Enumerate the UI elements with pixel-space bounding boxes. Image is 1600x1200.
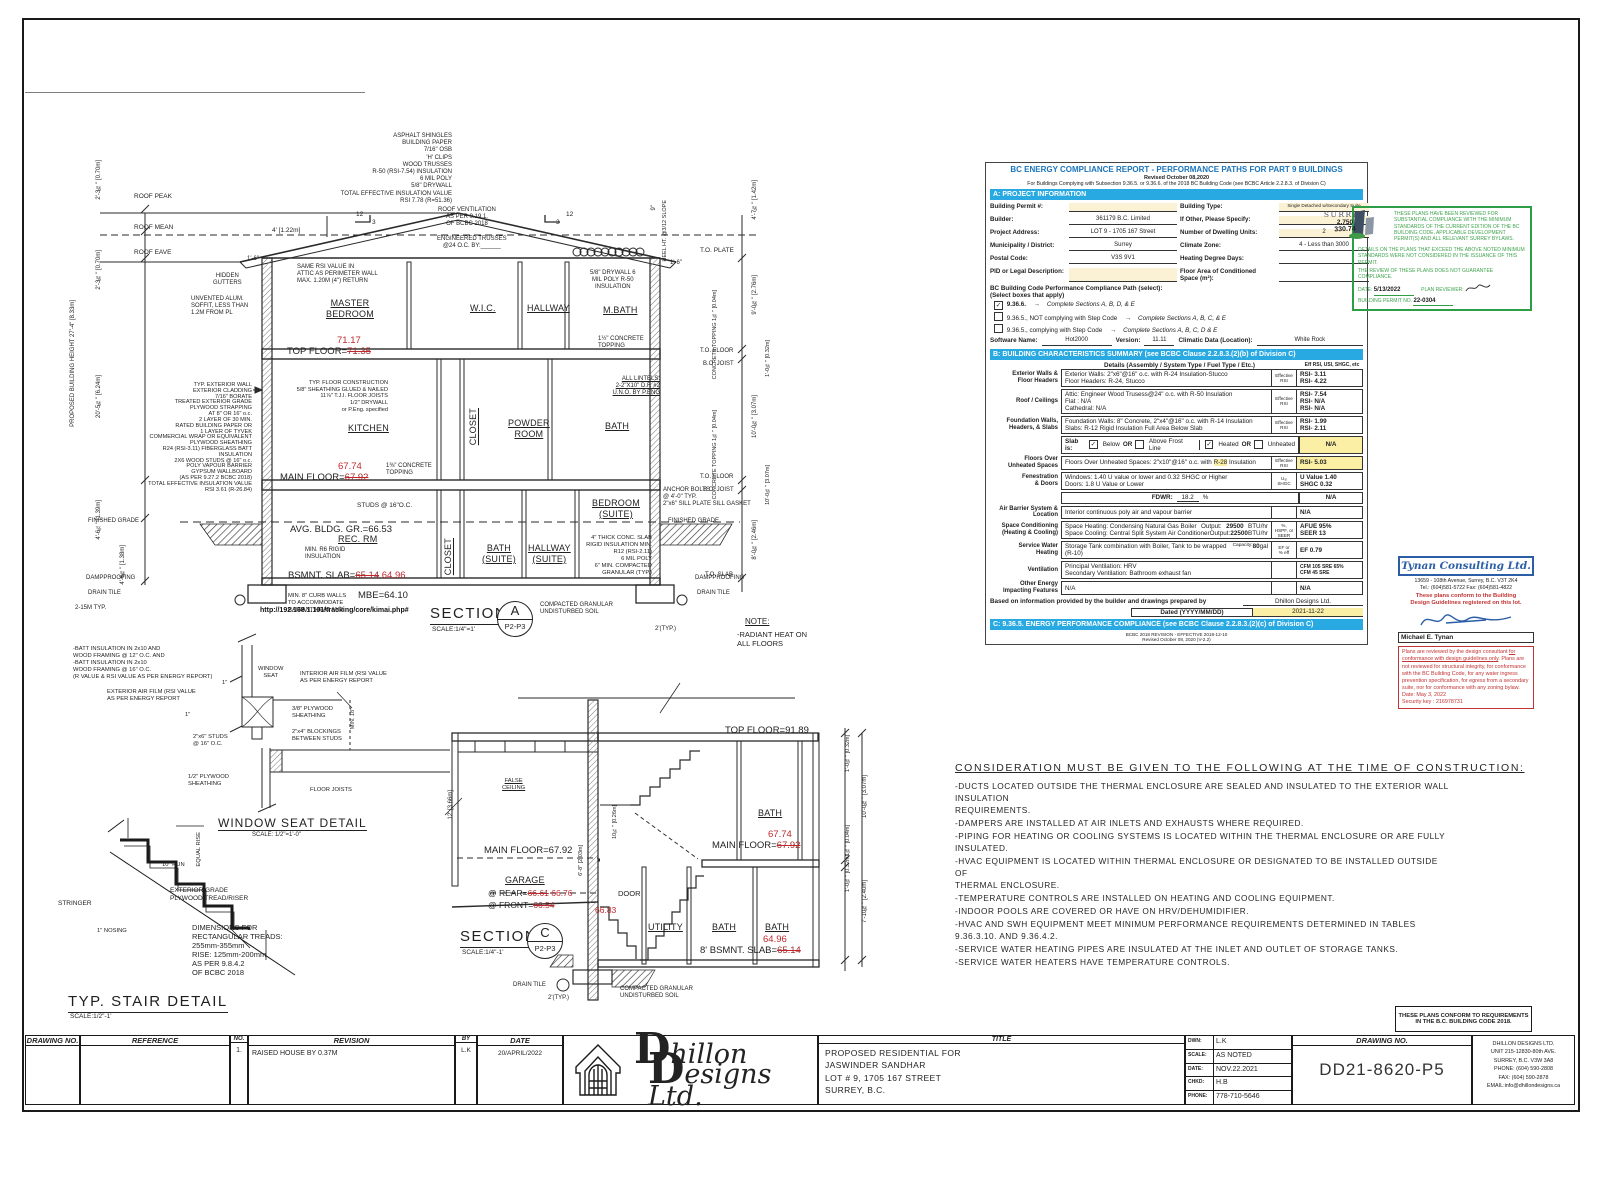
eff-value: RSI- 7.54	[1300, 391, 1362, 398]
tynan-conform-note: These plans conform to the Building Desi…	[1398, 593, 1534, 607]
tynan-stamp: Tynan Consulting Ltd. 13659 - 108th Aven…	[1398, 556, 1534, 709]
checkbox-checked-icon[interactable]: ✓	[994, 301, 1003, 310]
path-code: 9.36.5., NOT complying with Step Code	[1007, 315, 1118, 322]
c-bsmt-slab-new: 64.96	[763, 934, 787, 945]
dim-right-5: 10'-0⅝" [3.07m]	[765, 465, 772, 505]
eff-value: RSI- 5.03	[1300, 459, 1362, 466]
software-field[interactable]: Hot2000	[1042, 337, 1112, 346]
roof-peak-label: ROOF PEAK	[134, 193, 172, 201]
dim-left-1: 2'-3⅝" [0.70m]	[96, 160, 103, 200]
dim-overhang: 4' [1.22m]	[272, 227, 300, 235]
path-complete: Complete Sections A, B, D, & E	[1047, 301, 1135, 308]
tb-drawingno-col: DRAWING NO.	[25, 1035, 80, 1105]
consideration-item: -HVAC EQUIPMENT IS LOCATED WITHIN THERMA…	[955, 855, 1453, 891]
tb-h-drawing-no2: DRAWING NO.	[1293, 1036, 1471, 1046]
reviewer-signature	[1465, 283, 1491, 293]
room-bath-suite: BATH (SUITE)	[482, 543, 516, 565]
roof-vent-note: ROOF VENTILATION AS PER 9.19.1. OF BCBC …	[438, 207, 496, 229]
eff-value: U Value 1.40	[1300, 474, 1362, 481]
eff-value: CFM 45 SRE	[1300, 570, 1362, 576]
er-title: BC ENERGY COMPLIANCE REPORT - PERFORMANC…	[990, 166, 1363, 175]
climatic-field[interactable]: White Rock	[1257, 337, 1363, 346]
scale-value: AS NOTED	[1213, 1050, 1291, 1064]
consideration-item: -DUCTS LOCATED OUTSIDE THE THERMAL ENCLO…	[955, 780, 1453, 816]
stamp-paragraph-1: THESE PLANS HAVE BEEN REVIEWED FOR SUBST…	[1394, 211, 1526, 245]
eff-value: RSI- 4.22	[1300, 378, 1362, 385]
checkbox-icon[interactable]	[994, 312, 1003, 321]
tb-h-revision: REVISION	[249, 1036, 454, 1046]
room-wic: W.I.C.	[470, 303, 496, 314]
row-space-conditioning: Space Conditioning (Heating & Cooling) S…	[990, 521, 1363, 539]
to-plate-label: T.O. PLATE	[700, 247, 734, 255]
detail-line: Windows: 1.40 U value or lower and 0.32 …	[1065, 474, 1268, 481]
dim-left-3: 20'-5⅝" [6.24m]	[96, 375, 103, 418]
tb-date-col: DATE 20/APRIL/2022	[477, 1035, 563, 1105]
stringer-label: STRINGER	[58, 900, 92, 908]
granular-note: COMPACTED GRANULAR UNDISTURBED SOIL	[540, 602, 613, 616]
path-subheading: (Select boxes that apply)	[990, 292, 1363, 299]
heel-height-note: HEEL HT. @3/12 SLOPE	[662, 200, 669, 262]
project-address-field[interactable]: LOT 9 - 1705 167 Street	[1069, 229, 1177, 238]
section-a-ref: P2-P3	[498, 620, 532, 634]
checkbox-unheated-icon[interactable]	[1254, 440, 1263, 449]
path-option-3[interactable]: 9.36.5., complying with Step Code → Comp…	[994, 324, 1363, 334]
drain-tile-left: DRAIN TILE	[88, 590, 121, 597]
checkbox-heated-icon[interactable]: ✓	[1205, 440, 1214, 449]
field-label: Postal Code:	[990, 255, 1066, 264]
dwn-value: L.K	[1213, 1036, 1291, 1050]
arrow-icon: →	[1110, 327, 1115, 334]
phone-value: 778-710-5646	[1213, 1091, 1291, 1104]
consideration-item: -SERVICE WATER HEATERS HAVE TEMPERATURE …	[955, 956, 1453, 968]
floor-joists-label: FLOOR JOISTS	[310, 787, 352, 794]
software-row: Software Name: Hot2000 Version: 11.11 Cl…	[990, 337, 1363, 346]
int-air-film-note: INTERIOR AIR FILM (RSI VALUE AS PER ENER…	[300, 671, 387, 685]
scale-label: SCALE:	[1186, 1050, 1213, 1064]
plywood-38-note: 3/8" PLYWOOD SHEATHING	[292, 706, 333, 720]
consideration-item: -PIPING FOR HEATING OR COOLING SYSTEMS I…	[955, 830, 1453, 854]
detail-line: Principal Ventilation: HRV	[1065, 563, 1268, 570]
field-label: Building Permit #:	[990, 203, 1066, 212]
or-label: OR	[1123, 441, 1132, 448]
er-rev2: Revised October 08, 2020 (V-2.2)	[990, 637, 1363, 642]
dim-right-3: 1'-0⅝" [0.32m]	[765, 340, 772, 377]
main-floor-elevation: MAIN FLOOR=67.92	[280, 472, 368, 483]
dhillon-logo-text: Dhillon Designs Ltd.	[634, 1032, 817, 1109]
code-conform-text: THESE PLANS CONFORM TO REQUIREMENTS IN T…	[1396, 1013, 1531, 1025]
note-radiant: -RADIANT HEAT ON ALL FLOORS	[737, 630, 807, 648]
stamp-paragraph-3: THE REVIEW OF THESE PLANS DOES NOT GUARA…	[1358, 268, 1526, 281]
stamp-date-label: DATE:	[1358, 287, 1372, 293]
arrow-icon: →	[1034, 301, 1039, 308]
heel-9in: 9"	[651, 205, 658, 210]
eff-value: N/A	[1300, 509, 1362, 516]
field-label: Building Type:	[1180, 203, 1276, 212]
row-exterior-walls: Exterior Walls & Floor Headers Exterior …	[990, 369, 1363, 387]
tb-h-drawing-no: DRAWING NO.	[26, 1036, 79, 1046]
roof-eave-label: ROOF EAVE	[134, 249, 171, 257]
municipality-field[interactable]: Surrey	[1069, 242, 1177, 251]
drawing-sheet: { "a": { "roof_note": "ASPHALT SHINGLES\…	[0, 0, 1600, 1200]
row-fdwr: FDWR: 18.2 % N/A	[990, 492, 1363, 504]
date-label: DATE:	[1186, 1064, 1213, 1078]
tb-logo-panel: Dhillon Designs Ltd.	[563, 1035, 818, 1105]
revision-date: 20/APRIL/2022	[478, 1050, 562, 1057]
path-complete: Complete Sections A, B, C, D & E	[1123, 327, 1217, 334]
version-field[interactable]: 11.11	[1144, 337, 1174, 346]
concrete-topping-lower: 1⅜" CONCRETE TOPPING	[386, 463, 432, 477]
dated-row: Dated (YYYY/MM/DD) 2021-11-22	[990, 608, 1363, 617]
slab-value: N/A	[1299, 436, 1363, 454]
slope-left: 12	[356, 211, 363, 219]
er-section-a-bar: A: PROJECT INFORMATION	[990, 189, 1363, 200]
tynan-address: 13659 - 108th Avenue, Surrey, B.C. V3T 2…	[1398, 578, 1534, 591]
main-floor-new: 67.74	[338, 461, 362, 472]
section-c-ref: P2-P3	[528, 942, 562, 956]
consideration-item: -TEMPERATURE CONTROLS ARE INSTALLED ON H…	[955, 892, 1453, 904]
building-height-dim: PROPOSED BUILDING HEIGHT 27'-4" [8.33m]	[70, 300, 77, 427]
hidden-gutters-note: HIDDEN GUTTERS	[213, 273, 242, 287]
field-label: Climate Zone:	[1180, 242, 1276, 251]
dim-1-6-right: 1'-6"	[670, 260, 682, 267]
path-complete: Complete Sections A, B, C, & E	[1138, 315, 1226, 322]
garage-front-new: 66.83	[595, 905, 616, 915]
equal-rise-label: EQUAL RISE	[196, 832, 203, 867]
surrey-logo-cluster: SURREY 2,750 330.74	[1322, 210, 1368, 233]
detail-line: Doors: 1.8 U Value or Lower	[1065, 481, 1268, 488]
er-subtitle: For Buildings Complying with Subsection …	[990, 181, 1363, 187]
dated-label: Dated (YYYY/MM/DD)	[1131, 608, 1253, 617]
slab-above-label: Above Frost Line	[1149, 438, 1194, 452]
room-bath-upper: BATH	[758, 808, 782, 819]
note-heading: NOTE:	[745, 617, 769, 627]
energy-compliance-report: BC ENERGY COMPLIANCE REPORT - PERFORMANC…	[985, 162, 1368, 645]
same-rsi-note: SAME RSI VALUE IN ATTIC AS PERIMETER WAL…	[297, 264, 378, 286]
based-on-label: Based on information provided by the bui…	[990, 598, 1243, 606]
dim-1in-b: 1"	[185, 712, 190, 719]
r6-insulation-note: MIN. R6 RIGID INSULATION	[305, 547, 345, 561]
eff-value: RSI- 3.11	[1300, 371, 1362, 378]
top-floor-new: 71.17	[337, 335, 361, 346]
garage-rear-elev: @ REAR=66.61 66.76	[488, 888, 573, 898]
false-ceiling-label: FALSE CEILING	[502, 778, 525, 792]
checkbox-above-icon[interactable]	[1135, 440, 1144, 449]
bsmt-slab-elevation: BSMNT. SLAB=65.14 64.96	[288, 570, 406, 581]
software-label: Software Name:	[990, 337, 1038, 346]
section-c-scale: SCALE:1/4"-1'	[462, 949, 504, 957]
detail-line: Space Cooling: Central Split System Air …	[1065, 530, 1268, 537]
dampproofing-left: DAMPPROOFING	[86, 575, 135, 582]
top-floor-elevation: TOP FLOOR=71.35	[287, 346, 371, 357]
considerations-title: CONSIDERATION MUST BE GIVEN TO THE FOLLO…	[955, 762, 1453, 774]
c-main-floor-right: MAIN FLOOR=67.92	[712, 840, 800, 851]
field-label: Floor Area of Conditioned Space (m²):	[1180, 268, 1276, 282]
pid-field[interactable]	[1069, 268, 1177, 282]
min-18-dim: MIN. 18"	[350, 708, 357, 729]
stamp-date-value: 5/13/2022	[1374, 287, 1414, 296]
construction-considerations: CONSIDERATION MUST BE GIVEN TO THE FOLLO…	[955, 762, 1453, 969]
tb-meta-panel: DWN: L.K SCALE: AS NOTED DATE: NOV.22.20…	[1185, 1035, 1292, 1105]
section-a-marker: A P2-P3	[497, 601, 533, 637]
footing-dim: 2'(TYP.)	[655, 626, 676, 633]
dim-right-1: 4'-7⅝" [1.42m]	[752, 180, 759, 220]
detail-line: Interior continuous poly air and vapour …	[1065, 509, 1268, 516]
fdwr-label: FDWR:	[1152, 494, 1173, 501]
c-dim-r3: 1⅝" [0.04m]	[845, 825, 852, 856]
path-option-1[interactable]: ✓ 9.36.6. → Complete Sections A, B, D, &…	[994, 301, 1363, 310]
consideration-item: -INDOOR POOLS ARE COVERED OR HAVE ON HRV…	[955, 905, 1453, 917]
phone-label: PHONE:	[1186, 1091, 1213, 1104]
builder-field[interactable]: 361179 B.C. Limited	[1069, 216, 1177, 225]
tynan-disclaimer: Plans are reviewed by the design consult…	[1398, 646, 1534, 708]
c-dim-r4: 1'-0⅝" [0.32m]	[845, 855, 852, 892]
room-rec: REC. RM	[338, 534, 377, 545]
field-label: Heating Degree Days:	[1180, 255, 1276, 264]
window-seat-label: WINDOW SEAT	[258, 666, 283, 680]
based-on-value: Dhillon Designs Ltd.	[1243, 598, 1363, 606]
col-eff: Eff RSI, USI, SHGC, etc	[1301, 362, 1363, 369]
detail-line: Flat : N/A	[1065, 398, 1268, 405]
col-details: Details (Assembly / System Type / Fuel T…	[1058, 362, 1301, 369]
path-option-2[interactable]: 9.36.5., NOT complying with Step Code → …	[994, 312, 1363, 322]
room-master-bedroom: MASTER BEDROOM	[326, 298, 374, 320]
eff-value: RSI- N/A	[1300, 405, 1362, 412]
concrete-topping-upper: 1½" CONCRETE TOPPING	[598, 336, 644, 350]
detail-line: Attic: Engineer Wood Trusess@24" o.c. wi…	[1065, 391, 1268, 398]
room-powder: POWDER ROOM	[508, 418, 550, 440]
c-top-floor: TOP FLOOR=91.89	[725, 725, 809, 736]
room-bedroom-suite: BEDROOM (SUITE)	[592, 498, 640, 520]
room-garage: GARAGE	[505, 875, 545, 886]
tb-by-col: BY L.K	[455, 1035, 477, 1105]
tb-h-reference: REFERENCE	[81, 1036, 229, 1046]
stamp-paragraph-2: DETAILS ON THE PLANS THAT EXCEED THE ABO…	[1358, 247, 1526, 266]
tb-h-no: NO.	[231, 1036, 247, 1043]
er-project-fields: Building Permit #: Building Type: Single…	[990, 203, 1363, 282]
section-c-marker: C P2-P3	[527, 923, 563, 959]
revision-by: L.K	[456, 1047, 476, 1054]
ext-wall-note: TYP. EXTERIOR WALL EXTERIOR CLADDING 7/1…	[148, 383, 252, 493]
building-permit-field[interactable]	[1069, 203, 1177, 212]
row-foundation: Foundation Walls, Headers, & Slabs Found…	[990, 416, 1363, 434]
floor-construction-note: TYP. FLOOR CONSTRUCTION 5/8" SHEATHING G…	[297, 380, 388, 414]
stamp-date-row: DATE: 5/13/2022 PLAN REVIEWER:	[1358, 283, 1526, 296]
studs-2x6-note: 2"x6" STUDS @ 16" O.C.	[193, 734, 228, 748]
row-roof-ceilings: Roof / Ceilings Attic: Engineer Wood Tru…	[990, 389, 1363, 414]
tynan-name: Tynan Consulting Ltd.	[1398, 556, 1534, 576]
room-mbath: M.BATH	[603, 305, 638, 316]
room-hallway: HALLWAY	[527, 303, 570, 314]
ext-air-film-note: EXTERIOR AIR FILM (RSI VALUE AS PER ENER…	[107, 689, 196, 703]
c-dim-68: 6'-8" [2.03m]	[578, 845, 585, 876]
c-granular-note: COMPACTED GRANULAR UNDISTURBED SOIL	[620, 986, 693, 1000]
path-heading: BC Building Code Performance Compliance …	[990, 285, 1363, 292]
tynan-date: Date: May 3, 2022	[1402, 692, 1446, 698]
row-fenestration: Fenestration & Doors Windows: 1.40 U val…	[990, 472, 1363, 490]
mbe-elevation: MBE=64.10	[358, 590, 408, 601]
percent-label: %	[1203, 494, 1209, 501]
stamp-permit-label: BUILDING PERMIT NO.	[1358, 298, 1412, 304]
slope-right: 12	[566, 211, 573, 219]
field-label: Municipality / District:	[990, 242, 1066, 251]
eff-value: RSI- 1.99	[1300, 418, 1362, 425]
checkbox-icon[interactable]	[994, 324, 1003, 333]
c-main-floor-new: 67.74	[768, 829, 792, 840]
room-utility: UTILITY	[648, 922, 683, 933]
er-b-header: Details (Assembly / System Type / Fuel T…	[990, 362, 1363, 369]
soffit-note: UNVENTED ALUM. SOFFIT, LESS THAN 1.2M FR…	[191, 296, 248, 318]
lintels-note: ALL LINTELS: 2-2"X10" D.F. #2 U.N.O. BY …	[613, 376, 660, 398]
detail-line: Foundation Walls: 8" Concrete, 2"x4"@16"…	[1065, 418, 1268, 425]
code-conform-box: THESE PLANS CONFORM TO REQUIREMENTS IN T…	[1395, 1006, 1532, 1032]
section-c-title: SECTION	[460, 928, 537, 948]
field-label: Number of Dwelling Units:	[1180, 229, 1276, 238]
detail-line: Floors Over Unheated Spaces: 2"x10"@16" …	[1065, 459, 1268, 466]
room-closet-main: CLOSET	[468, 408, 479, 445]
tynan-key: Security key : 216978731	[1402, 699, 1463, 705]
tb-company-panel: DHILLON DESIG­NS LTD. UNIT 215-12830-80t…	[1472, 1035, 1575, 1105]
tb-h-by: BY	[456, 1036, 476, 1043]
c-footing-dim: 2'(TYP.)	[548, 995, 569, 1002]
dim-1in-a: 1"	[222, 680, 227, 687]
door-label: DOOR	[618, 889, 641, 898]
drawing-number: DD21-8620-P5	[1293, 1060, 1471, 1080]
plywood-12-note: 1/2" PLYWOOD SHEATHING	[188, 774, 229, 788]
garage-front-elev: @ FRONT=66.54	[488, 900, 555, 910]
run-label: 10" RUN	[162, 862, 185, 869]
consideration-item: -DAMPERS ARE INSTALLED AT AIR INLETS AND…	[955, 817, 1453, 829]
c-dim-r1: 1'-0⅝" [0.32m]	[845, 735, 852, 772]
fdwr-value[interactable]: 18.2	[1177, 494, 1199, 502]
room-bath-bsmt1: BATH	[712, 922, 736, 933]
room-bath-main: BATH	[605, 421, 629, 432]
tread-dimensions-note: DIMENSIONS FOR RECTANGULAR TREADS: 255mm…	[192, 923, 283, 977]
tb-h-date: DATE	[478, 1036, 562, 1046]
detail-line: Secondary Ventilation: Bathroom exhaust …	[1065, 570, 1268, 577]
nosing-label: 1" NOSING	[97, 928, 127, 935]
detail-line: Storage Tank combination with Boiler, Ta…	[1065, 543, 1268, 557]
detail-line: Exterior Walls: 2"x6"@16" o.c. with R-24…	[1065, 371, 1268, 378]
section-a-title: SECTION	[430, 605, 507, 625]
er-section-c-bar: C: 9.36.5. ENERGY PERFORMANCE COMPLIANCE…	[990, 619, 1363, 630]
room-hallway-suite: HALLWAY (SUITE)	[528, 543, 571, 565]
climatic-label: Climatic Data (Location):	[1178, 337, 1252, 346]
consideration-item: -HVAC AND SWH EQUIPMENT MEET MINIMUM PER…	[955, 918, 1453, 942]
room-closet-bsmt: CLOSET	[443, 538, 454, 575]
row-service-water: Service Water Heating Storage Tank combi…	[990, 541, 1363, 559]
company-info: DHILLON DESIG­NS LTD. UNIT 215-12830-80t…	[1473, 1036, 1574, 1090]
c-bsmt-slab: 8' BSMNT. SLAB=65.14	[700, 945, 801, 956]
tynan-signature	[1416, 609, 1516, 631]
revision-text: RAISED HOUSE BY 0.37M	[249, 1046, 454, 1061]
c-dim-r5: 7'-10⅝" [2.40m]	[862, 880, 869, 923]
row-air-barrier: Air Barrier System & Location Interior c…	[990, 506, 1363, 520]
slab-unheated-label: Unheated	[1268, 441, 1295, 448]
dated-value[interactable]: 2021-11-22	[1253, 608, 1363, 617]
fdwr-na: N/A	[1299, 492, 1363, 504]
arrow-icon: →	[1125, 315, 1130, 322]
batt-insulation-note: -BATT INSULATION IN 2x10 AND WOOD FRAMIN…	[73, 646, 212, 681]
version-label: Version:	[1116, 337, 1141, 346]
date-value: NOV.22.2021	[1213, 1064, 1291, 1078]
detail-line: Slabs: R-12 Rigid Insulation Full Area B…	[1065, 425, 1268, 432]
consideration-item: -SERVICE WATER HEATING PIPES ARE INSULAT…	[955, 943, 1453, 955]
dim-left-2: 2'-3⅝" [0.70m]	[96, 250, 103, 290]
postal-code-field[interactable]: V3S 9V1	[1069, 255, 1177, 264]
project-title: PROPOSED RESIDENTIAL FOR JASWINDER SANDH…	[819, 1044, 1184, 1099]
revision-no: 1.	[231, 1047, 247, 1054]
detail-line: Floor Headers: R-24, Stucco	[1065, 378, 1268, 385]
or-label: OR	[1242, 441, 1251, 448]
drain-tile-right: DRAIN TILE	[697, 590, 730, 597]
url-watermark: http://192.168.1.101/tracking/core/kimai…	[260, 607, 409, 614]
eff-value: EF 0.79	[1300, 547, 1362, 554]
studs-note: STUDS @ 16"O.C.	[357, 502, 412, 510]
path-code: 9.36.6.	[1007, 301, 1026, 308]
slope-left-run: 3	[372, 219, 376, 227]
checkbox-below-icon[interactable]: ✓	[1089, 440, 1098, 449]
stamp-permit-value: 22-0304	[1413, 298, 1453, 307]
tb-reference-col: REFERENCE	[80, 1035, 230, 1105]
dim-left-5: 4'-6⅝" [1.38m]	[120, 545, 127, 585]
tb-title-panel: TITLE PROPOSED RESIDENTIAL FOR JASWINDER…	[818, 1035, 1185, 1105]
based-on-row: Based on information provided by the bui…	[990, 598, 1363, 606]
tb-revision-col: REVISION RAISED HOUSE BY 0.37M	[248, 1035, 455, 1105]
row-slab-is: Slab is: ✓ Below OR Above Frost Line ✓ H…	[990, 436, 1363, 454]
chkd-value: H.B	[1213, 1077, 1291, 1091]
dim-1-6-left: 1'-6"	[247, 256, 259, 263]
rebar-note: 2-15M TYP.	[75, 605, 106, 612]
blockings-note: 2"x4" BLOCKINGS BETWEEN STUDS	[292, 729, 342, 743]
surrey-review-stamp: THESE PLANS HAVE BEEN REVIEWED FOR SUBST…	[1352, 206, 1532, 311]
dwn-label: DWN:	[1186, 1036, 1213, 1050]
margin-line	[25, 92, 365, 93]
detail-line: Space Heating: Condensing Natural Gas Bo…	[1065, 523, 1268, 530]
trusses-note: ENGINEERED TRUSSES @24 O.C. BY:______	[437, 236, 507, 250]
c-dim-1034: 10¾" [0.26m]	[612, 805, 619, 839]
stair-title: TYP. STAIR DETAIL	[68, 993, 228, 1013]
field-label: Project Address:	[990, 229, 1066, 238]
roof-assembly-note: ASPHALT SHINGLES BUILDING PAPER 7/16" OS…	[341, 133, 452, 205]
tb-h-title: TITLE	[819, 1036, 1184, 1044]
drywall-right-note: 5/8" DRYWALL 6 MIL POLY R-50 INSULATION	[590, 270, 636, 292]
c-drain-tile: DRAIN TILE	[513, 982, 546, 989]
tread-riser-note: EXTERIOR GRADE PLYWOOD TREAD/RISER	[170, 887, 248, 903]
eff-value: SEER 13	[1300, 530, 1362, 537]
dhillon-house-icon	[572, 1041, 624, 1099]
to-slab: T.O. SLAB	[705, 572, 733, 579]
row-floors-over: Floors Over Unheated Spaces Floors Over …	[990, 456, 1363, 470]
chkd-label: CHKD:	[1186, 1077, 1213, 1091]
room-bath-bsmt2: BATH	[765, 922, 789, 933]
stair-scale: SCALE:1/2"-1'	[70, 1013, 112, 1021]
path-code: 9.36.5., complying with Step Code	[1007, 327, 1103, 334]
dim-left-4: 4'-6¾" [1.39m]	[96, 500, 103, 540]
roof-mean-label: ROOF MEAN	[134, 224, 173, 232]
conc-topping-dim-2: CONCRETE TOPPING 1⅝" [0.04m]	[712, 410, 719, 499]
slab-is-label: Slab is:	[1065, 438, 1086, 452]
room-kitchen: KITCHEN	[348, 423, 389, 434]
tynan-signer: Michael E. Tynan	[1398, 632, 1534, 643]
row-ventilation: Ventilation Principal Ventilation: HRVSe…	[990, 561, 1363, 579]
eff-value: N/A	[1300, 585, 1362, 592]
row-other-features: Other Energy Impacting Features N/A N/A	[990, 581, 1363, 595]
c-dim-r2: 10'-0⅝" [3.07m]	[862, 775, 869, 818]
detail-line: N/A	[1065, 585, 1268, 592]
dim-right-4: 10'-0⅝" [3.07m]	[752, 395, 759, 438]
tb-drawing-number-panel: DRAWING NO. DD21-8620-P5	[1292, 1035, 1472, 1105]
detail-line: Cathedral: N/A	[1065, 405, 1268, 412]
